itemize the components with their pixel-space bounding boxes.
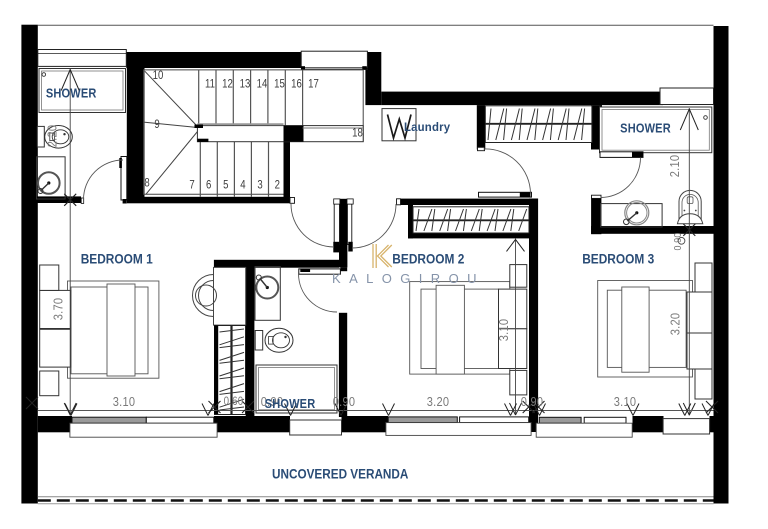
svg-text:SHOWER: SHOWER bbox=[46, 86, 97, 101]
svg-text:3.10: 3.10 bbox=[496, 319, 511, 342]
svg-text:5: 5 bbox=[223, 178, 228, 191]
svg-text:2: 2 bbox=[275, 178, 280, 191]
svg-text:3: 3 bbox=[257, 178, 262, 191]
svg-text:3.20: 3.20 bbox=[427, 394, 450, 409]
svg-text:3.20: 3.20 bbox=[668, 313, 683, 336]
svg-text:0.90: 0.90 bbox=[521, 394, 544, 409]
svg-text:3.70: 3.70 bbox=[51, 298, 66, 321]
svg-text:3.10: 3.10 bbox=[614, 394, 637, 409]
svg-text:12: 12 bbox=[222, 77, 233, 90]
svg-text:13: 13 bbox=[240, 77, 251, 90]
svg-text:KALOGIROU: KALOGIROU bbox=[332, 271, 485, 286]
svg-text:BEDROOM 1: BEDROOM 1 bbox=[81, 250, 153, 266]
svg-text:6: 6 bbox=[206, 178, 211, 191]
svg-text:7: 7 bbox=[189, 178, 194, 191]
svg-text:18: 18 bbox=[352, 126, 363, 139]
svg-text:BEDROOM 3: BEDROOM 3 bbox=[582, 251, 654, 267]
svg-text:9: 9 bbox=[154, 118, 159, 131]
svg-text:16: 16 bbox=[291, 77, 302, 90]
svg-text:SHOWER: SHOWER bbox=[265, 396, 316, 411]
svg-text:4: 4 bbox=[240, 178, 245, 191]
svg-text:UNCOVERED VERANDA: UNCOVERED VERANDA bbox=[272, 465, 408, 481]
svg-text:14: 14 bbox=[257, 77, 268, 90]
svg-text:10: 10 bbox=[153, 69, 164, 82]
svg-text:BEDROOM 2: BEDROOM 2 bbox=[392, 250, 464, 266]
svg-text:8: 8 bbox=[144, 176, 149, 189]
svg-text:SHOWER: SHOWER bbox=[620, 121, 671, 136]
svg-text:15: 15 bbox=[274, 77, 285, 90]
svg-text:2.20: 2.20 bbox=[45, 125, 60, 148]
svg-text:17: 17 bbox=[308, 77, 319, 90]
svg-text:0.90: 0.90 bbox=[333, 394, 356, 409]
svg-text:2.10: 2.10 bbox=[667, 155, 682, 178]
svg-text:0.60: 0.60 bbox=[224, 395, 244, 408]
svg-text:Laundry: Laundry bbox=[404, 121, 451, 134]
svg-text:3.10: 3.10 bbox=[113, 394, 136, 409]
svg-text:11: 11 bbox=[205, 77, 215, 90]
